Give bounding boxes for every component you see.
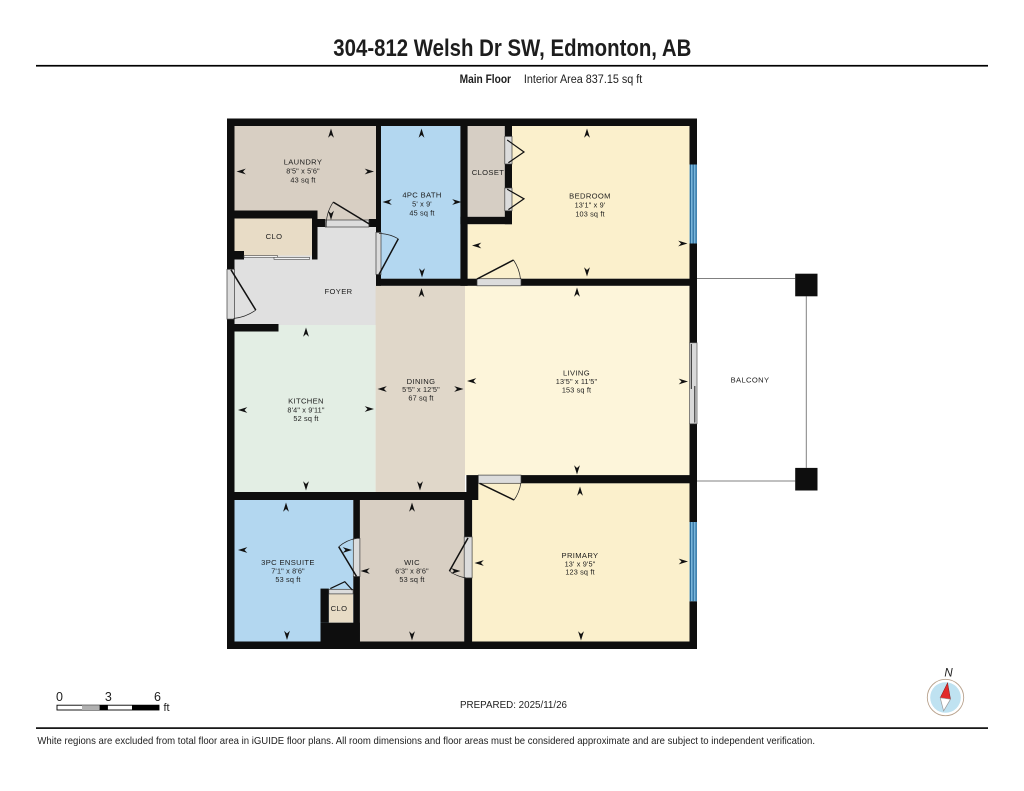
svg-text:53 sq ft: 53 sq ft <box>399 575 424 584</box>
svg-text:67 sq ft: 67 sq ft <box>408 394 433 403</box>
svg-text:0: 0 <box>56 690 63 704</box>
svg-text:CLOSET: CLOSET <box>472 168 504 177</box>
svg-text:153 sq ft: 153 sq ft <box>562 385 591 394</box>
svg-text:13'1" x 9': 13'1" x 9' <box>575 201 606 210</box>
svg-text:4PC BATH: 4PC BATH <box>402 191 441 200</box>
svg-text:8'5" x 5'6": 8'5" x 5'6" <box>286 167 320 176</box>
svg-text:CLO: CLO <box>266 232 283 241</box>
svg-text:BEDROOM: BEDROOM <box>569 192 611 201</box>
svg-text:52 sq ft: 52 sq ft <box>293 414 318 423</box>
svg-text:43 sq ft: 43 sq ft <box>290 176 315 185</box>
svg-text:ft: ft <box>164 702 170 714</box>
svg-text:Main Floor: Main Floor <box>460 74 512 86</box>
svg-text:3: 3 <box>105 690 112 704</box>
svg-text:103 sq ft: 103 sq ft <box>575 210 604 219</box>
svg-text:45 sq ft: 45 sq ft <box>409 209 434 218</box>
svg-text:53 sq ft: 53 sq ft <box>275 575 300 584</box>
svg-text:KITCHEN: KITCHEN <box>288 397 324 406</box>
svg-text:LAUNDRY: LAUNDRY <box>284 158 323 167</box>
svg-text:White regions are excluded fro: White regions are excluded from total fl… <box>37 736 815 747</box>
svg-text:N: N <box>944 668 953 680</box>
svg-text:Interior Area 837.15 sq ft: Interior Area 837.15 sq ft <box>524 74 643 86</box>
svg-text:CLO: CLO <box>331 604 348 613</box>
svg-text:BALCONY: BALCONY <box>731 376 770 385</box>
svg-text:PREPARED: 2025/11/26: PREPARED: 2025/11/26 <box>460 699 567 711</box>
svg-text:FOYER: FOYER <box>325 287 353 296</box>
svg-text:5' x 9': 5' x 9' <box>412 200 432 209</box>
svg-text:123 sq ft: 123 sq ft <box>565 568 594 577</box>
svg-text:6: 6 <box>154 690 161 704</box>
svg-text:304-812 Welsh Dr SW, Edmonton,: 304-812 Welsh Dr SW, Edmonton, AB <box>333 35 691 62</box>
